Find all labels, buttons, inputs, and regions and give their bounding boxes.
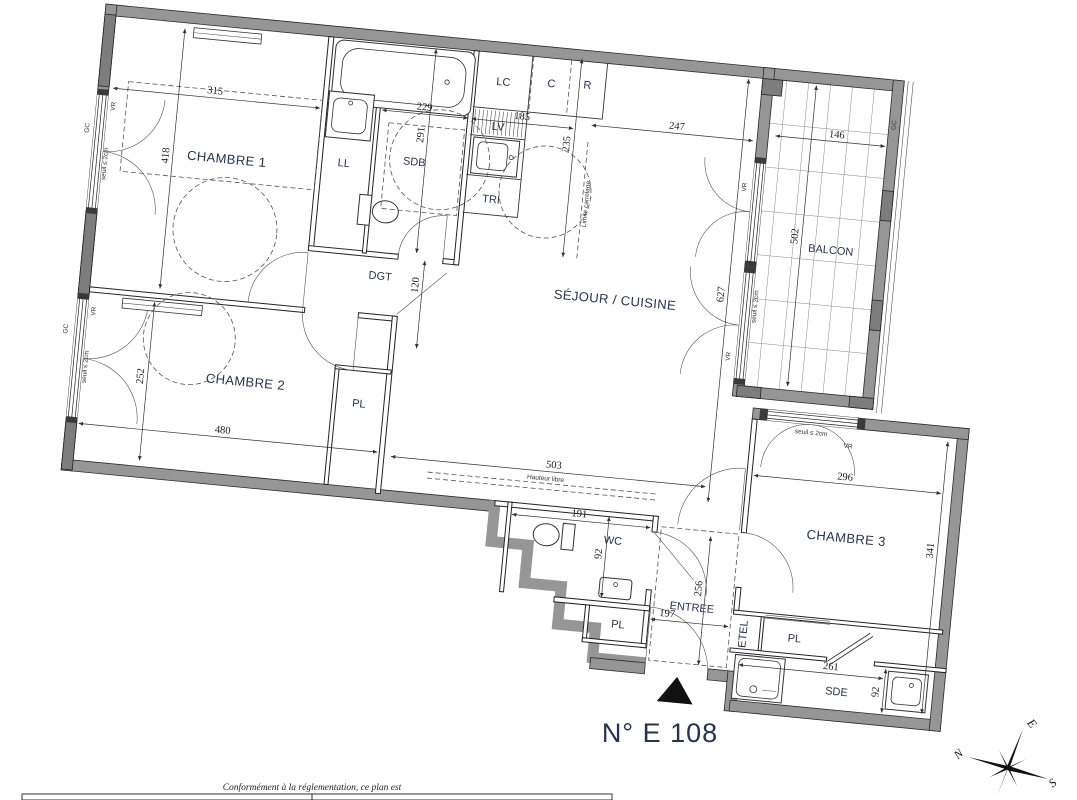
dim-sejour-height: 627 bbox=[715, 286, 727, 303]
legend-box: Conformément à la réglementation, ce pla… bbox=[22, 782, 612, 800]
room-label-sdb: SDB bbox=[402, 155, 426, 169]
annotation-vr: VR bbox=[725, 351, 733, 361]
annotation-seuil: seuil ≤ 2cm bbox=[794, 428, 827, 438]
annotation-gc: GC bbox=[891, 120, 899, 131]
plan-title: N° E 108 bbox=[602, 718, 718, 748]
annotation-vr: VR bbox=[90, 306, 98, 316]
entrance-marker bbox=[657, 675, 695, 704]
room-label-ll: LL bbox=[337, 157, 350, 170]
dim-balcon-width: 146 bbox=[828, 129, 845, 141]
room-label-sde: SDE bbox=[825, 685, 849, 699]
shower bbox=[731, 654, 785, 703]
radiator bbox=[193, 28, 262, 44]
sdb-toilet bbox=[357, 194, 400, 228]
room-label-lc: LC bbox=[496, 76, 511, 89]
dim-chambre3-width: 296 bbox=[837, 471, 854, 483]
balcony-pier bbox=[880, 190, 894, 221]
dim-chambre3-height: 341 bbox=[925, 542, 937, 559]
room-label-chambre1: CHAMBRE 1 bbox=[186, 148, 267, 171]
dim-kitchen-height: 235 bbox=[561, 136, 573, 153]
interior-walls bbox=[61, 16, 1001, 677]
dim-sejour-width: 503 bbox=[545, 459, 562, 471]
dim-sde-width: 261 bbox=[822, 661, 839, 673]
balcony-pier bbox=[736, 385, 761, 398]
room-label-tri: TRI bbox=[482, 193, 501, 207]
balcony-pier bbox=[761, 78, 782, 96]
dim-sdb-height: 291 bbox=[415, 127, 427, 144]
wall-pier bbox=[98, 14, 116, 87]
wall-pier bbox=[78, 210, 97, 297]
dim-chambre1-height: 418 bbox=[160, 147, 172, 164]
annotation-limite-carrelage: Limite carrelage bbox=[581, 180, 592, 227]
annotation-vr: VR bbox=[741, 182, 749, 192]
room-label-pl-chambre2: PL bbox=[352, 398, 367, 411]
footer-note: Conformément à la réglementation, ce pla… bbox=[223, 782, 402, 793]
balcony-pier bbox=[869, 300, 883, 331]
compass-rose: N E S bbox=[950, 715, 1059, 796]
window-swing bbox=[680, 266, 744, 379]
annotation-hauteur-libre: Hauteur libre bbox=[527, 474, 565, 485]
dim-kitchen-width: 185 bbox=[514, 111, 531, 123]
floor-plan-sheet: 315 418 229 291 185 235 247 146 502 627 … bbox=[0, 0, 1077, 800]
compass-east-label: E bbox=[1024, 715, 1041, 731]
dim-sdb-width: 229 bbox=[416, 101, 433, 113]
dim-dgt: 120 bbox=[410, 277, 422, 294]
dim-chambre1-width: 315 bbox=[207, 85, 224, 97]
room-label-lv: LV bbox=[491, 121, 505, 134]
room-label-entree: ENTREE bbox=[669, 600, 715, 616]
wc-washbasin bbox=[598, 577, 632, 600]
window-swing bbox=[696, 157, 755, 261]
dashed-zone bbox=[120, 82, 323, 190]
balcony-pier bbox=[849, 396, 874, 409]
floor-plan: 315 418 229 291 185 235 247 146 502 627 … bbox=[32, 3, 1002, 731]
dim-wc-width: 191 bbox=[571, 508, 588, 520]
room-label-pl-wc: PL bbox=[611, 618, 626, 631]
kitchen-sink bbox=[471, 137, 520, 177]
dim-sejour-top: 247 bbox=[668, 121, 685, 133]
room-label-etel: ETEL bbox=[736, 620, 751, 649]
room-label-pl-chambre3: PL bbox=[787, 632, 802, 645]
dim-sde-height: 92 bbox=[870, 686, 882, 698]
dim-entree-height: 256 bbox=[693, 580, 705, 597]
sde-washbasin bbox=[885, 671, 928, 713]
room-label-sejour: SÉJOUR / CUISINE bbox=[553, 286, 677, 313]
annotation-vr: VR bbox=[843, 443, 853, 451]
dim-wc-height: 92 bbox=[593, 548, 605, 560]
compass-north-label: N bbox=[950, 745, 967, 762]
room-label-r: R bbox=[583, 79, 592, 92]
floor-plan-canvas: 315 418 229 291 185 235 247 146 502 627 … bbox=[0, 0, 1077, 800]
annotation-gc: GC bbox=[84, 122, 92, 133]
room-label-wc: WC bbox=[603, 534, 622, 548]
sdb-washbasin bbox=[325, 91, 374, 141]
room-label-c: C bbox=[547, 78, 556, 91]
room-label-chambre3: CHAMBRE 3 bbox=[806, 527, 887, 550]
room-label-chambre2: CHAMBRE 2 bbox=[205, 370, 286, 393]
annotation-gc: GC bbox=[62, 323, 70, 334]
dim-chambre2-width: 480 bbox=[214, 425, 231, 437]
entree-dashed-zone bbox=[649, 527, 739, 668]
dim-chambre2-height: 252 bbox=[135, 368, 147, 385]
wc-toilet bbox=[532, 521, 575, 551]
compass-south-label: S bbox=[1046, 776, 1060, 791]
room-label-dgt: DGT bbox=[368, 270, 393, 284]
dim-balcon-height: 502 bbox=[789, 228, 801, 245]
annotation-vr: VR bbox=[110, 101, 118, 111]
room-label-balcon: BALCON bbox=[808, 243, 854, 259]
